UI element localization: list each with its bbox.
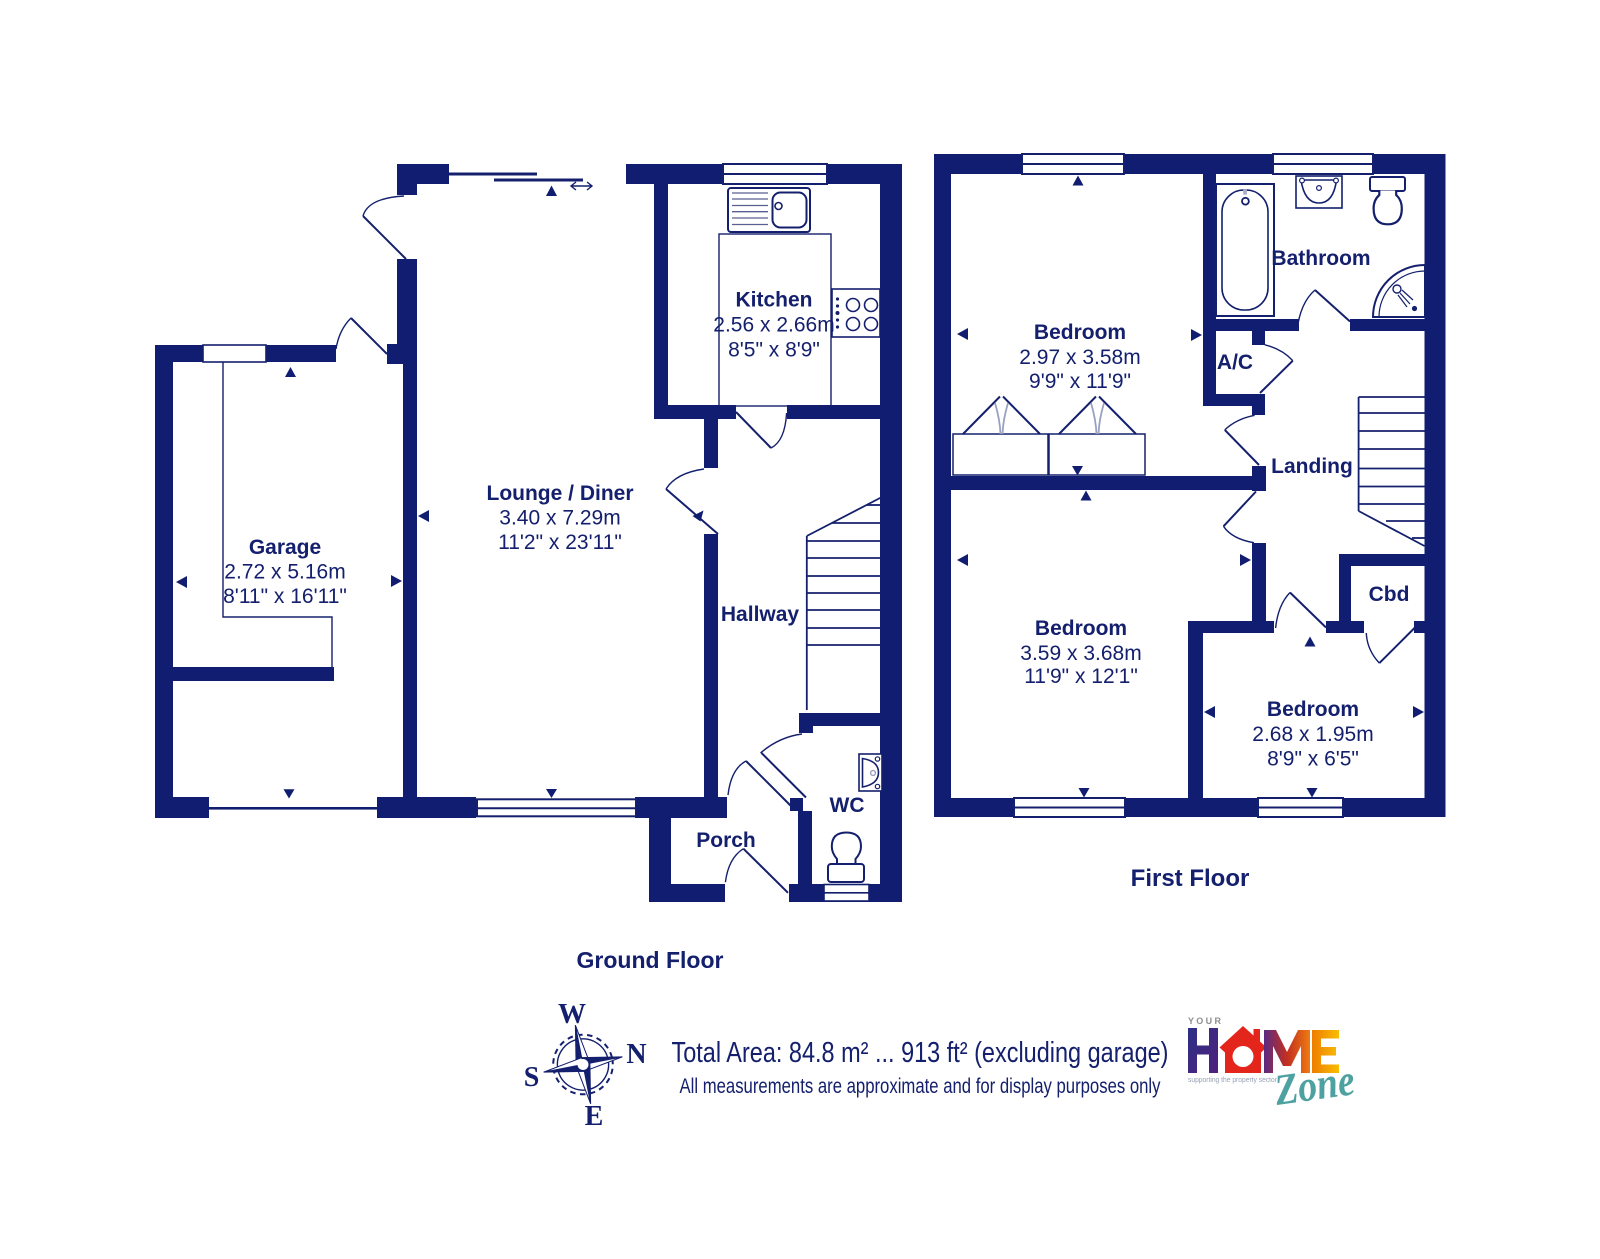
svg-text:supporting the property sector: supporting the property sector — [1188, 1075, 1277, 1084]
svg-text:Landing: Landing — [1271, 455, 1353, 478]
svg-text:Bedroom: Bedroom — [1267, 698, 1359, 721]
svg-text:Garage: Garage — [249, 536, 321, 559]
svg-text:11'2" x 23'11": 11'2" x 23'11" — [498, 531, 622, 554]
svg-text:Hallway: Hallway — [721, 603, 800, 626]
svg-text:9'9" x 11'9": 9'9" x 11'9" — [1029, 370, 1131, 393]
svg-text:Porch: Porch — [696, 829, 756, 852]
svg-text:3.59 x 3.68m: 3.59 x 3.68m — [1020, 642, 1141, 665]
svg-text:8'5" x 8'9": 8'5" x 8'9" — [728, 339, 820, 362]
svg-text:Lounge / Diner: Lounge / Diner — [487, 482, 634, 505]
svg-text:Bedroom: Bedroom — [1035, 617, 1127, 640]
svg-text:Ground Floor: Ground Floor — [577, 947, 724, 973]
svg-text:W: W — [558, 999, 586, 1030]
svg-text:8'9" x 6'5": 8'9" x 6'5" — [1267, 748, 1359, 771]
svg-text:2.68 x 1.95m: 2.68 x 1.95m — [1252, 723, 1373, 746]
svg-text:8'11" x 16'11": 8'11" x 16'11" — [223, 585, 347, 608]
svg-text:Kitchen: Kitchen — [735, 289, 812, 312]
svg-text:Total Area: 84.8 m² ... 913 ft: Total Area: 84.8 m² ... 913 ft² (excludi… — [672, 1037, 1169, 1069]
svg-text:2.72 x 5.16m: 2.72 x 5.16m — [224, 561, 345, 584]
svg-text:11'9" x 12'1": 11'9" x 12'1" — [1024, 665, 1138, 688]
svg-text:WC: WC — [830, 794, 865, 817]
svg-text:First Floor: First Floor — [1131, 865, 1250, 892]
svg-text:Bedroom: Bedroom — [1034, 321, 1126, 344]
svg-text:Cbd: Cbd — [1369, 583, 1410, 606]
svg-text:E: E — [585, 1101, 604, 1132]
svg-text:Y O U R: Y O U R — [1188, 1016, 1222, 1026]
svg-text:All measurements are approxima: All measurements are approximate and for… — [680, 1074, 1161, 1098]
svg-text:3.40 x 7.29m: 3.40 x 7.29m — [499, 507, 620, 530]
svg-text:2.56 x 2.66m: 2.56 x 2.66m — [713, 314, 834, 337]
svg-text:S: S — [524, 1062, 540, 1093]
svg-text:N: N — [626, 1039, 646, 1070]
svg-text:2.97 x 3.58m: 2.97 x 3.58m — [1019, 346, 1140, 369]
svg-text:Bathroom: Bathroom — [1271, 247, 1370, 270]
svg-text:A/C: A/C — [1217, 351, 1253, 374]
